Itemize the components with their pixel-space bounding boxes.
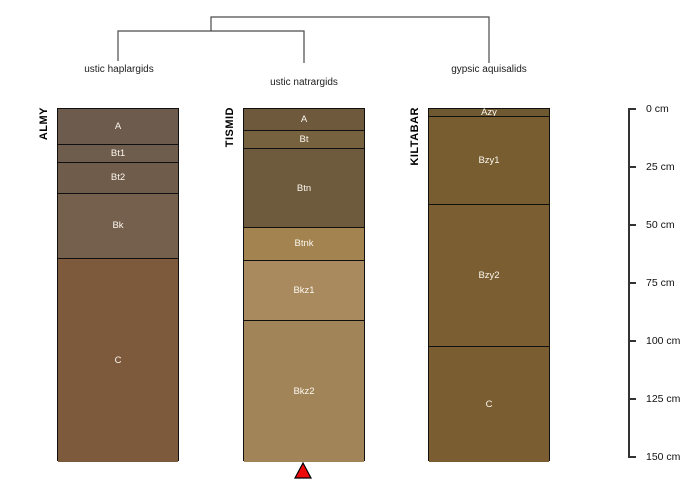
depth-tick-label: 0 cm xyxy=(646,104,669,115)
depth-tick xyxy=(628,456,636,458)
horizon-label: Bkz1 xyxy=(293,286,314,296)
soil-profile-figure: ustic haplargids ustic natrargids gypsic… xyxy=(0,0,700,500)
depth-tick xyxy=(628,340,636,342)
horizon-label: Bt1 xyxy=(111,149,125,159)
depth-tick-label: 150 cm xyxy=(646,452,680,463)
horizon-label: Btn xyxy=(297,184,311,194)
horizon-label: Bzy1 xyxy=(478,156,499,166)
depth-tick xyxy=(628,166,636,168)
depth-tick-label: 125 cm xyxy=(646,394,680,405)
depth-tick xyxy=(628,224,636,226)
horizon-label: Bk xyxy=(112,221,123,231)
taxon-label-ustic-natrargids: ustic natrargids xyxy=(219,77,389,88)
horizon-label: Btnk xyxy=(294,239,313,249)
horizon-kiltabar-c: C xyxy=(429,346,549,462)
depth-tick xyxy=(628,108,636,110)
horizon-tismid-a: A xyxy=(244,109,364,130)
horizon-label: C xyxy=(486,400,493,410)
horizon-almy-bt1: Bt1 xyxy=(58,144,178,163)
horizon-tismid-bkz2: Bkz2 xyxy=(244,320,364,462)
profile-id-tismid: TISMID xyxy=(224,107,236,147)
horizon-kiltabar-azy: Azy xyxy=(429,109,549,116)
taxon-label-ustic-haplargids: ustic haplargids xyxy=(34,64,204,75)
profile-id-almy: ALMY xyxy=(38,107,50,140)
horizon-label: Bt xyxy=(300,135,309,145)
depth-tick-label: 100 cm xyxy=(646,336,680,347)
depth-tick-label: 75 cm xyxy=(646,278,675,289)
horizon-label: Bzy2 xyxy=(478,271,499,281)
profile-tismid: ABtBtnBtnkBkz1Bkz2 xyxy=(243,108,365,461)
horizon-almy-c: C xyxy=(58,258,178,462)
horizon-almy-a: A xyxy=(58,109,178,144)
profile-almy: ABt1Bt2BkC xyxy=(57,108,179,461)
marker-triangle-icon xyxy=(294,461,314,480)
horizon-label: A xyxy=(301,115,307,125)
taxon-label-gypsic-aquisalids: gypsic aquisalids xyxy=(404,64,574,75)
horizon-tismid-bt: Bt xyxy=(244,130,364,149)
depth-tick xyxy=(628,282,636,284)
profile-id-kiltabar: KILTABAR xyxy=(409,107,421,166)
horizon-label: C xyxy=(115,356,122,366)
horizon-label: Bt2 xyxy=(111,173,125,183)
horizon-label: A xyxy=(115,122,121,132)
horizon-kiltabar-bzy1: Bzy1 xyxy=(429,116,549,204)
horizon-kiltabar-bzy2: Bzy2 xyxy=(429,204,549,346)
horizon-tismid-btn: Btn xyxy=(244,148,364,227)
horizon-almy-bt2: Bt2 xyxy=(58,162,178,192)
depth-tick xyxy=(628,398,636,400)
horizon-almy-bk: Bk xyxy=(58,193,178,258)
depth-tick-label: 50 cm xyxy=(646,220,675,231)
horizon-tismid-bkz1: Bkz1 xyxy=(244,260,364,320)
horizon-label: Bkz2 xyxy=(293,387,314,397)
profile-kiltabar: AzyBzy1Bzy2C xyxy=(428,108,550,461)
horizon-tismid-btnk: Btnk xyxy=(244,227,364,260)
depth-tick-label: 25 cm xyxy=(646,162,675,173)
